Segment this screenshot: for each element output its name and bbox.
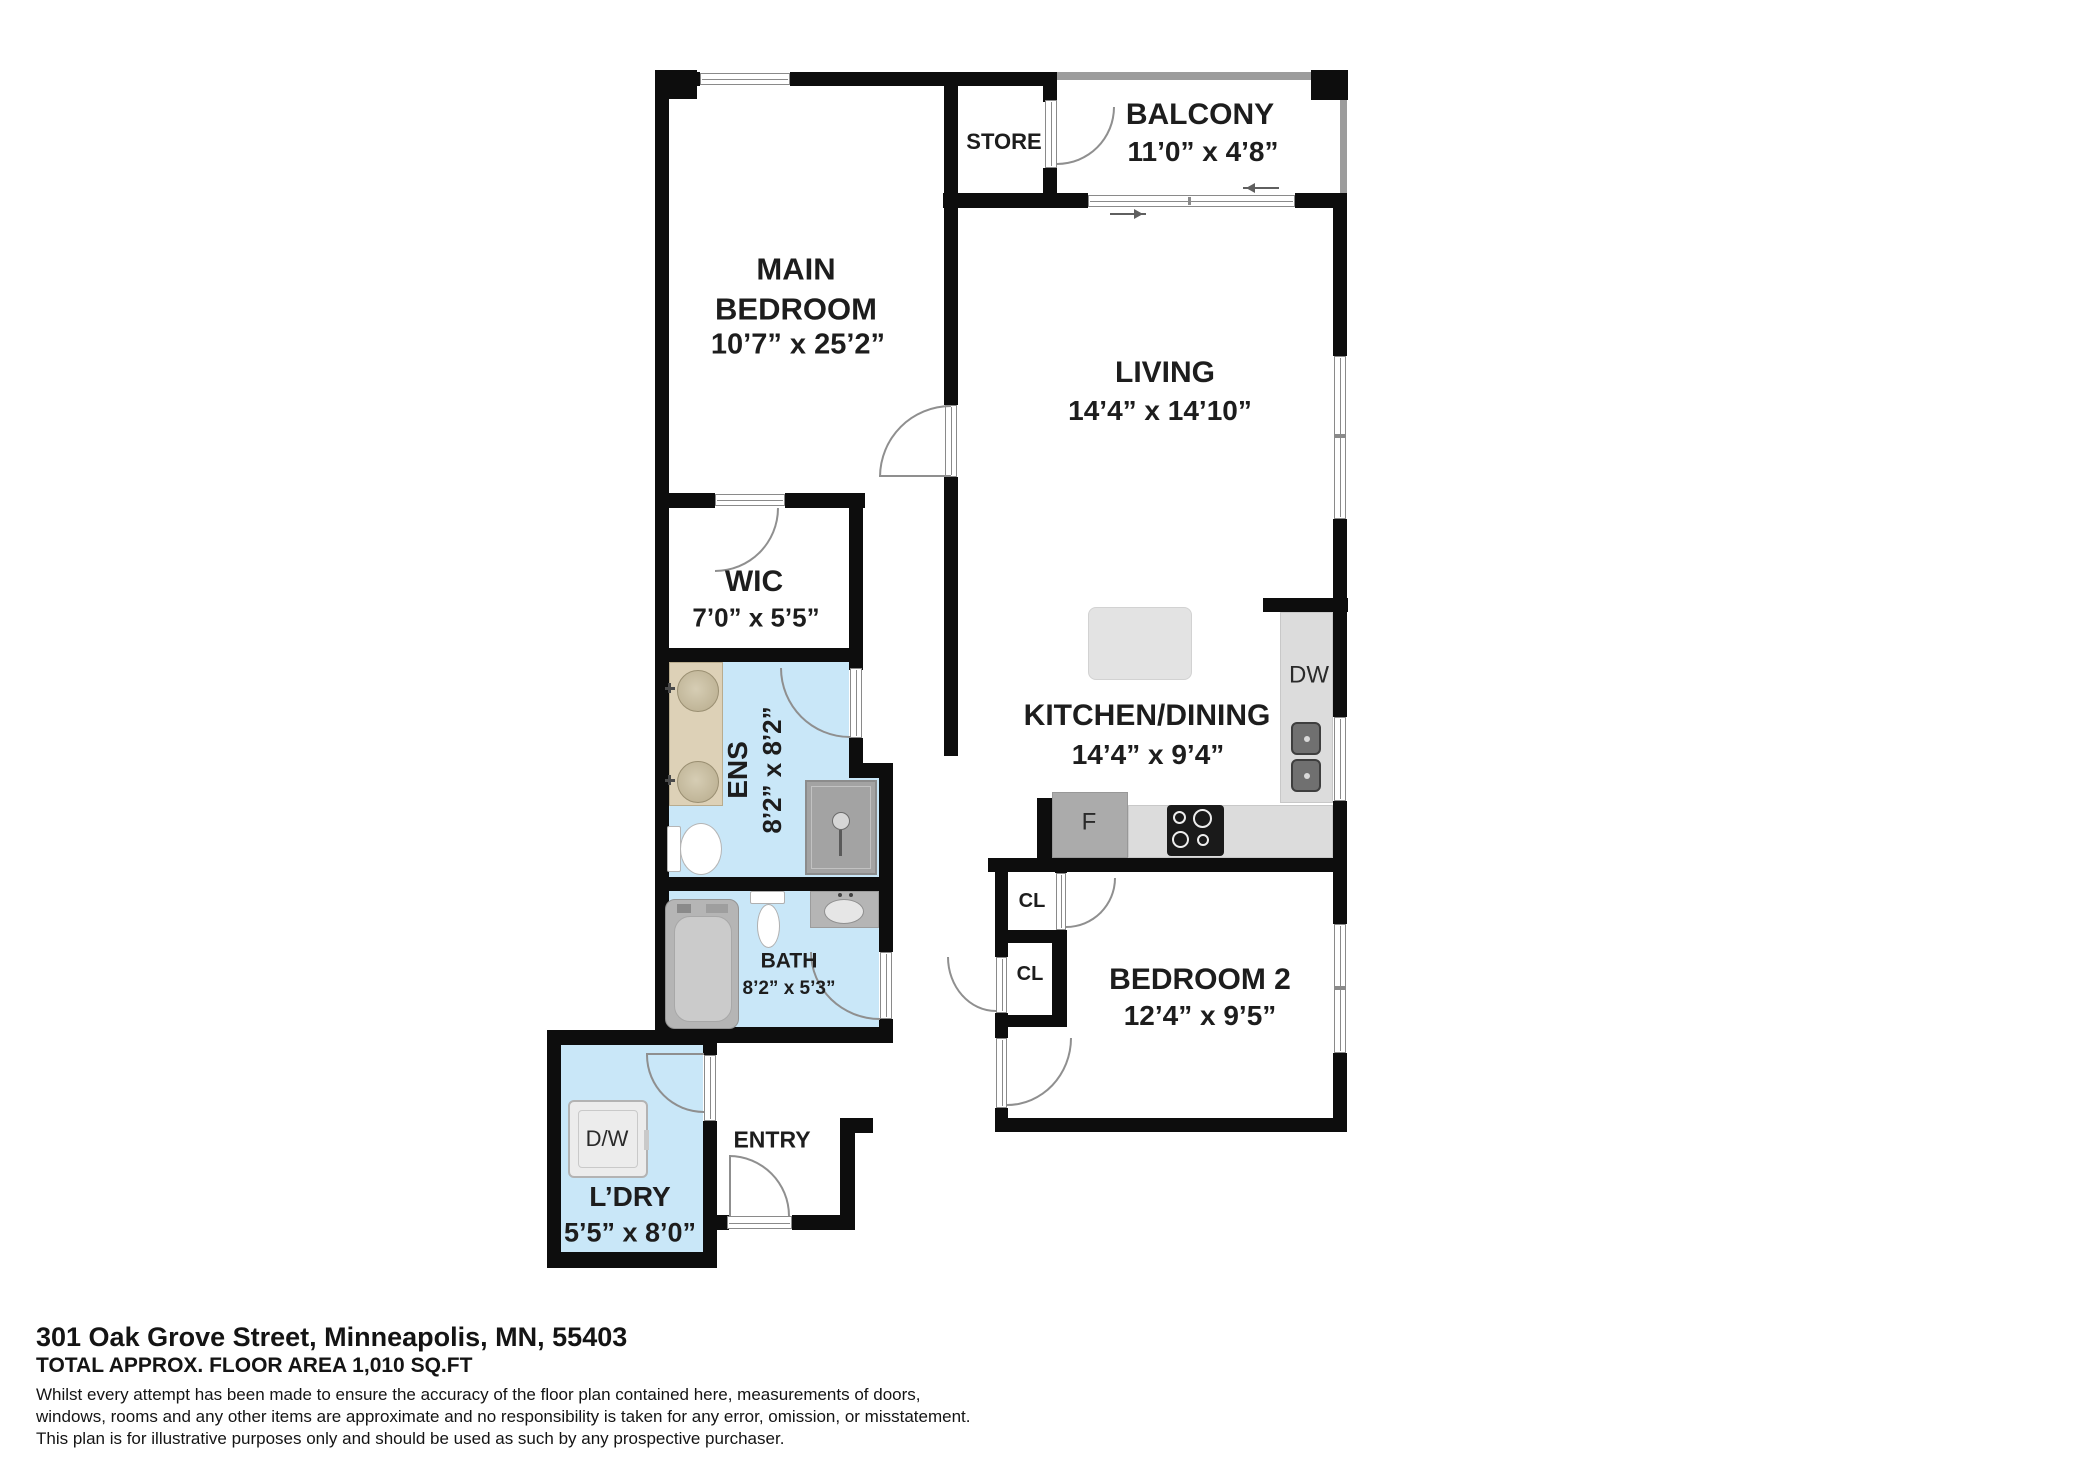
wall [703,1045,717,1055]
room-label-bedroom2: BEDROOM 2 [1109,961,1291,999]
door-jamb [996,1038,1007,1108]
wall [840,1118,855,1230]
wall [547,1030,561,1268]
wall [1052,935,1067,1027]
toilet-icon [757,904,780,948]
room-label-main-bedroom: MAIN BEDROOM [691,250,901,331]
wall [988,858,1347,872]
wall [849,738,863,765]
door-arc [947,957,996,1012]
bath-faucet-icon [677,904,691,913]
door-jamb [1045,100,1057,168]
appliance-label-dishwasher: DW [1289,661,1329,692]
wall [943,193,1088,208]
wall [790,72,1057,86]
shower-head-icon [832,812,850,830]
faucet-icon [668,775,671,785]
door-arc [1066,878,1116,928]
toilet-icon [750,891,785,904]
floor-area-total: TOTAL APPROX. FLOOR AREA 1,010 SQ.FT [36,1354,472,1378]
wall [995,1108,1008,1132]
window-tick [1188,197,1191,205]
kitchen-counter-bottom [1128,805,1333,858]
wall [1311,70,1348,100]
toilet-icon [680,823,722,875]
door-jamb [715,494,785,506]
room-label-wic: WIC [725,563,783,601]
wall [995,1118,1347,1132]
room-label-bath: BATH [761,949,818,976]
disclaimer-line-3: This plan is for illustrative purposes o… [36,1429,784,1449]
wall [655,648,863,662]
ens-dims: 8’2” x 8’2” [756,706,790,833]
door-arc [879,405,951,477]
bathtub-icon [665,899,739,1029]
ens-name: ENS [720,706,756,833]
door-jamb [850,668,862,738]
wall [1333,207,1347,356]
burner-icon [1197,834,1209,846]
sliding-window [1088,195,1295,207]
bath-faucet-icon [706,904,728,913]
door-jamb [727,1216,792,1229]
room-label-closet-2: CL [1017,962,1044,988]
room-dims-living: 14’4” x 14’10” [1068,393,1252,429]
room-dims-kitchen: 14’4” x 9’4” [1072,737,1225,773]
balcony-rail-top [1057,72,1311,80]
floor-plan-page: MAIN BEDROOM 10’7” x 25’2” STORE BALCONY… [0,0,2080,1470]
wall [655,493,715,508]
room-dims-bath: 8’2” x 5’3” [743,977,836,1001]
disclaimer-line-1: Whilst every attempt has been made to en… [36,1385,920,1405]
drain-icon [1304,773,1310,779]
door-leaf [646,1053,704,1055]
burner-icon [1172,831,1189,848]
burner-icon [1173,811,1186,824]
faucet-icon [849,893,853,897]
room-dims-bedroom2: 12’4” x 9’5” [1124,998,1277,1034]
slide-direction-arrow-icon [1243,187,1279,189]
wall [547,1030,717,1045]
wall [879,778,893,877]
wall [1263,598,1348,612]
washer-handle [644,1130,649,1150]
burner-icon [1193,809,1212,828]
kitchen-sink-icon [1291,722,1321,755]
vanity-sink-icon [677,670,719,712]
appliance-label-washer-dryer: D/W [586,1125,629,1153]
toilet-icon [667,826,681,872]
window-tick [1335,434,1345,438]
room-dims-balcony: 11’0” x 4’8” [1127,134,1278,170]
door-jamb [996,957,1007,1013]
room-label-kitchen: KITCHEN/DINING [1024,697,1271,735]
room-dims-main-bedroom: 10’7” x 25’2” [711,326,885,363]
room-dims-laundry: 5’5” x 8’0” [564,1216,696,1251]
room-label-living: LIVING [1115,354,1215,392]
door-jamb [880,952,892,1019]
wall [1055,858,1067,873]
door-leaf [729,1155,731,1216]
window-tick [1335,986,1345,990]
vanity-sink-icon [677,761,719,803]
wall [655,70,669,1043]
door-arc [1007,1038,1072,1106]
wall [849,763,893,778]
window [1334,717,1346,801]
faucet-icon [838,893,842,897]
room-label-balcony: BALCONY [1126,96,1274,134]
shower-hose-icon [839,830,842,856]
wall [703,1121,717,1268]
kitchen-island [1088,607,1192,680]
wall [1295,193,1347,208]
shower-icon [805,780,877,875]
wall [547,1252,717,1268]
disclaimer-line-2: windows, rooms and any other items are a… [36,1407,970,1427]
door-arc [1057,107,1115,165]
window [700,73,790,85]
room-label-ens: ENS 8’2” x 8’2” [720,706,790,833]
wall [944,72,958,405]
room-label-closet-1: CL [1019,889,1046,915]
wall [1333,872,1347,924]
wall [655,877,893,891]
wall [1333,612,1347,717]
wall [855,1118,873,1133]
slide-direction-arrow-icon [1110,213,1146,215]
door-jamb [1056,873,1066,930]
stove-icon [1167,805,1224,856]
wall [944,477,958,756]
drain-icon [1304,736,1310,742]
door-arc [729,1155,790,1216]
room-label-laundry: L’DRY [589,1179,670,1215]
balcony-rail-right [1340,100,1347,193]
door-leaf [879,475,951,477]
bath-sink-icon [824,899,864,924]
room-label-store: STORE [966,128,1041,156]
kitchen-sink-icon [1291,759,1321,792]
room-dims-wic: 7’0” x 5’5” [692,601,819,634]
door-jamb [704,1055,716,1121]
wall [849,493,863,662]
faucet-icon [668,683,671,693]
wall [1037,798,1052,858]
bathtub-basin [674,916,732,1022]
appliance-label-fridge: F [1082,808,1097,839]
property-address: 301 Oak Grove Street, Minneapolis, MN, 5… [36,1322,627,1353]
room-label-entry: ENTRY [733,1125,810,1154]
